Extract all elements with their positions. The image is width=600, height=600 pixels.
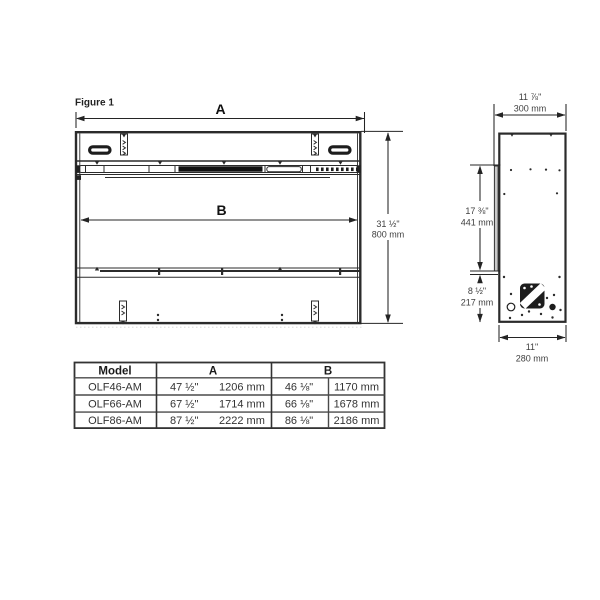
svg-text:441 mm: 441 mm	[461, 218, 494, 228]
svg-text:17 ⅜": 17 ⅜"	[465, 206, 488, 216]
svg-text:2186 mm: 2186 mm	[334, 415, 380, 427]
svg-text:47 ½": 47 ½"	[170, 382, 198, 394]
svg-text:800 mm: 800 mm	[372, 230, 405, 240]
svg-text:1170 mm: 1170 mm	[334, 382, 379, 394]
svg-text:OLF46-AM: OLF46-AM	[88, 382, 142, 394]
svg-text:1206 mm: 1206 mm	[219, 382, 265, 394]
svg-text:280 mm: 280 mm	[516, 354, 549, 364]
svg-text:B: B	[217, 202, 227, 218]
svg-text:87 ½": 87 ½"	[170, 415, 198, 427]
svg-text:11 ⅞": 11 ⅞"	[519, 92, 542, 102]
svg-text:OLF86-AM: OLF86-AM	[88, 415, 142, 427]
svg-text:1678 mm: 1678 mm	[334, 398, 380, 410]
svg-text:11": 11"	[526, 342, 539, 352]
svg-text:217 mm: 217 mm	[461, 298, 494, 308]
svg-text:A: A	[216, 101, 226, 117]
svg-text:8 ½": 8 ½"	[468, 286, 486, 296]
svg-text:300 mm: 300 mm	[514, 104, 547, 114]
svg-text:31 ½": 31 ½"	[376, 219, 399, 229]
svg-text:86 ⅛": 86 ⅛"	[285, 415, 313, 427]
svg-text:66 ⅛": 66 ⅛"	[285, 398, 313, 410]
svg-text:46 ⅛": 46 ⅛"	[285, 382, 313, 394]
svg-text:Figure 1: Figure 1	[75, 98, 114, 109]
svg-text:A: A	[209, 366, 217, 378]
svg-text:B: B	[324, 366, 332, 378]
svg-text:Model: Model	[98, 366, 131, 378]
svg-text:67 ½": 67 ½"	[170, 398, 198, 410]
svg-text:2222 mm: 2222 mm	[219, 415, 265, 427]
svg-text:OLF66-AM: OLF66-AM	[88, 398, 142, 410]
svg-text:1714 mm: 1714 mm	[219, 398, 265, 410]
